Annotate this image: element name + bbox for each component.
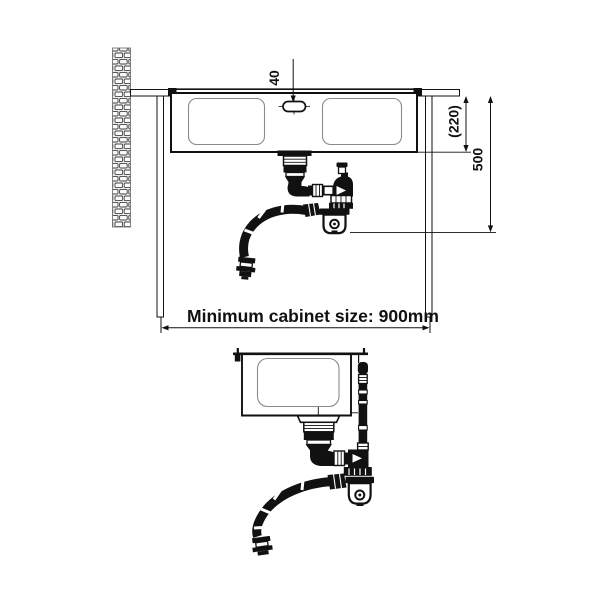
dimension-label-40: 40 [266, 70, 282, 86]
arrowhead [463, 96, 468, 103]
front-view: 40 [113, 48, 497, 333]
dimension-cabinet-width: Minimum cabinet size: 900mm [161, 306, 439, 333]
cabinet-side-left [157, 96, 164, 317]
dimension-label-220: (220) [446, 105, 462, 138]
hose-fitting [235, 257, 256, 281]
side-inner-bowl [258, 359, 340, 407]
side-bottle-trap [344, 467, 374, 506]
arrowhead [162, 325, 169, 330]
dimension-label-500: 500 [470, 148, 486, 172]
countertop-right [420, 90, 460, 97]
arrowhead [488, 96, 493, 103]
installation-diagram: 40 [0, 0, 600, 600]
waste-assembly-front [235, 151, 353, 281]
arrowhead [463, 145, 468, 152]
standpipe [358, 362, 369, 450]
side-waste-pipe [310, 450, 369, 468]
arrowhead [488, 225, 493, 232]
cabinet-side-right [426, 96, 433, 317]
brick-wall [113, 48, 131, 227]
drain-strainer [278, 151, 312, 184]
cabinet-size-label: Minimum cabinet size: 900mm [187, 306, 439, 326]
countertop-left [131, 90, 172, 97]
side-drain-hose [251, 474, 347, 557]
clip-hook-left [235, 355, 241, 362]
pipe-elbow [333, 173, 353, 197]
side-strainer [298, 416, 340, 451]
side-view [233, 348, 374, 556]
overflow-stub [337, 163, 348, 174]
drain-hose [235, 203, 320, 280]
bottle-trap [320, 196, 354, 234]
hose-fitting [251, 536, 273, 557]
